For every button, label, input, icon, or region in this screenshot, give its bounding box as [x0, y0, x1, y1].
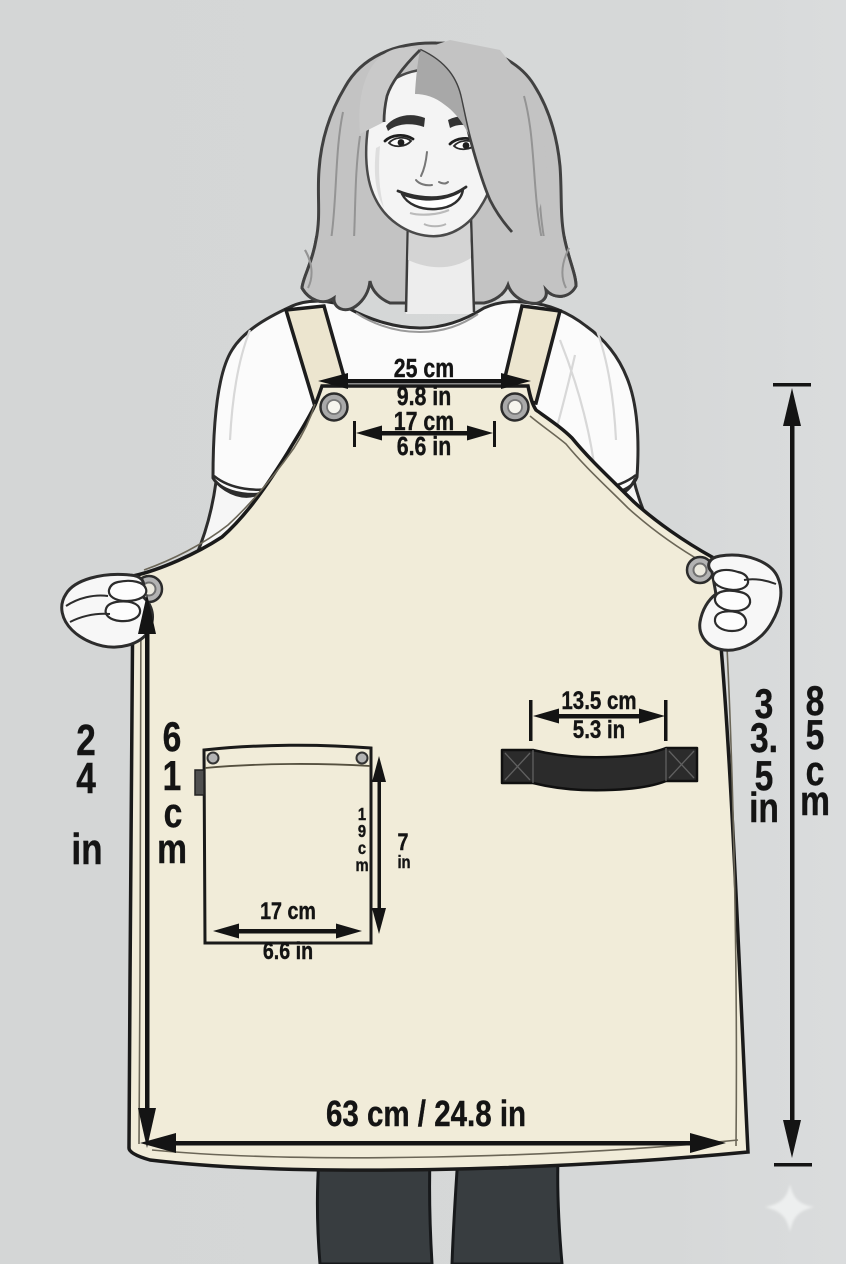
svg-text:25 cm: 25 cm [394, 354, 454, 384]
svg-text:m: m [157, 827, 187, 873]
svg-text:5.3 in: 5.3 in [573, 715, 625, 743]
svg-text:6.6 in: 6.6 in [263, 937, 313, 964]
svg-text:in: in [71, 825, 102, 874]
svg-text:63 cm / 24.8 in: 63 cm / 24.8 in [326, 1093, 526, 1133]
svg-text:7: 7 [398, 828, 409, 855]
svg-text:4: 4 [76, 754, 96, 803]
svg-text:13.5 cm: 13.5 cm [561, 686, 636, 714]
svg-text:m: m [800, 779, 830, 825]
svg-text:17 cm: 17 cm [260, 897, 316, 924]
svg-text:in: in [397, 853, 410, 873]
svg-text:6.6 in: 6.6 in [397, 432, 451, 462]
svg-text:in: in [749, 786, 779, 832]
svg-text:m: m [355, 856, 368, 876]
